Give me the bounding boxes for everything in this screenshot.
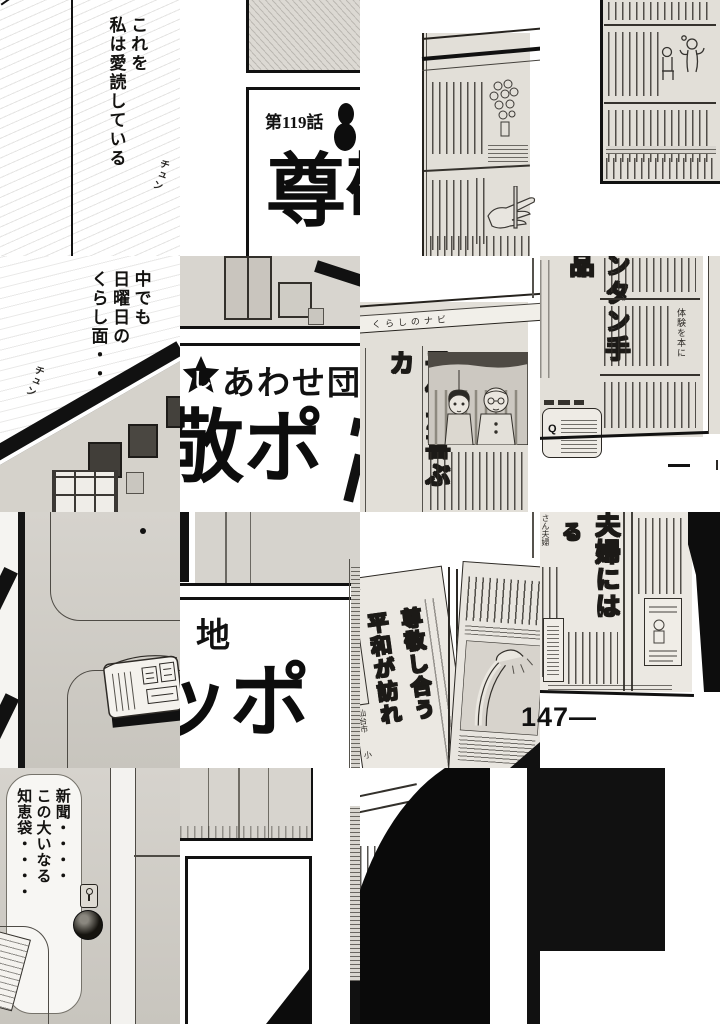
boxed-caption-marks [465,624,540,639]
title-fragment-2: 敬ポ [180,408,324,488]
panel-border [246,70,360,73]
wall-shading [195,512,360,583]
tile-newspaper-4: ンタン手品 体験を本に Q [540,256,720,512]
ad-header-mark [574,400,584,405]
newspaper-rule [604,102,716,104]
title-panel-border [246,87,249,256]
sfx-chirp-1: チュン [147,156,171,192]
newspaper-columns [604,382,696,428]
gutter-strip [490,768,527,1024]
tile-panel-corner [180,768,360,1024]
newspaper-rule [604,24,716,26]
building-window [166,396,180,428]
title-stroke-fragment [343,454,360,503]
page-edge-fragment [708,256,720,434]
headline-couple-3: る [562,516,582,545]
sign-star-char: し [192,364,212,393]
manga-page: これを 私は愛読している チュン 第119話 尊敬 [0,0,720,1024]
narration-text-1: これを 私は愛読している [104,16,149,240]
sfx-chirp-2: チュン [20,362,46,398]
newspaper-columns [430,452,528,510]
building-window [128,424,158,458]
tick-mark [716,460,718,470]
newspaper-border [600,0,603,184]
tile-door-2: 新聞・・・・ この大いなる 知恵袋・・・・ [0,768,180,1024]
tile-door-1 [0,512,180,768]
title-stroke-fragment [350,417,360,436]
tile-newspaper-2 [540,0,720,256]
newspaper-columns [432,82,470,154]
ad-header-mark [558,400,570,405]
title-fragment-1: 尊敬 [266,152,360,232]
peephole [140,528,146,534]
panel-border [180,838,313,841]
newspaper-columns [568,632,618,684]
silhouette-fragment [266,968,310,1024]
title-panel-border [180,343,360,346]
newspaper-columns [430,236,530,256]
fold-line [623,512,625,691]
newspaper-columns [540,260,556,378]
wall-vent-box [126,472,144,494]
panel-border [185,856,188,1024]
panel-border [71,0,73,256]
keyhole [86,888,93,895]
title-panel-border [180,597,360,600]
door-edge-line [18,512,25,768]
newspaper-right-page [448,561,540,768]
newspaper-rule [600,298,700,300]
wall-line [225,512,227,583]
sign-text-2: 地 [196,608,230,657]
newspaper-text-rows [488,142,528,162]
hinge-strip [350,806,360,981]
ad-header-mark [544,400,554,405]
newspaper-edge-line [360,783,417,797]
tile-title-3: 地 ッポ [180,512,360,768]
q-label: Q [548,423,557,435]
door-gap-strip [110,768,136,1024]
tile-title-2: し あわせ団 敬ポ [180,256,360,512]
tile-newspaper-3: くらしのナビ 子供が喜ぶカ [360,256,540,512]
title-fragment-3: ッポ [180,662,310,742]
newspaper-text-rows [548,682,672,690]
frame-line [134,855,180,857]
newspaper-columns [638,518,684,594]
black-margin [527,768,540,1024]
panel-corner-shading [248,0,360,71]
dash-mark [668,464,690,467]
tile-narration-2: 中でも 日曜日の くらし面・・。 チュン [0,256,180,512]
newspaper-border [422,33,424,256]
ad-box-figure [644,598,682,666]
panel-border [185,856,312,859]
tile-newspaper-5: 尊敬し合う 平和が訪れ 仙台市 小 [360,512,540,768]
newspaper-rule [600,374,700,376]
tiny-figure-illustration [645,599,681,665]
section-label: くらしのナビ [372,312,451,330]
page-edge-fragment [532,512,534,558]
newspaper-columns [608,32,660,96]
hand-illustration [484,186,540,236]
newspaper-border [426,33,427,256]
tile-black-block [540,768,720,1024]
door-knob [73,910,103,940]
building-window [224,256,272,320]
ad-box [543,618,564,682]
bird-mascot-icon [330,102,360,152]
panel-border [246,0,249,72]
newspaper-columns [466,576,540,625]
tile-newspaper-1 [360,0,540,256]
episode-label: 第119話 [265,108,324,133]
door-panel-line [50,512,180,621]
newspaper-columns [608,110,712,162]
column-rule [365,348,366,512]
newspaper-border [600,181,720,184]
fold-line [631,512,633,691]
panel-border [180,583,360,586]
black-block [540,768,665,951]
byline-couple: さん夫婦 [540,514,551,546]
photo-couple-illustration [428,352,528,445]
newspaper-columns [608,2,712,20]
qa-box: Q [542,408,602,458]
flower-bouquet-illustration [486,78,522,144]
sign-text-1: あわせ団 [222,356,360,404]
panel-border [180,326,360,329]
stick-figures-illustration [654,34,708,88]
frame-shadow-fragment [180,512,189,582]
wall-line [250,512,251,583]
building-window [278,282,312,318]
panel-border-fragment [1,0,13,6]
tile-title-1: 第119話 尊敬 [180,0,360,256]
building-window-frame [52,470,118,512]
newspaper-columns [474,82,485,154]
rolled-newspaper [100,645,180,724]
page-edge-fragment [532,258,534,298]
page-number: 147— [521,702,597,733]
byline-grade: 小 [362,750,374,759]
newspaper-columns [606,158,716,179]
hinge-line [349,559,350,768]
wall-texture [180,826,311,838]
newspaper-text-rows [606,146,716,154]
wall-vent-box [308,308,324,325]
note-experience: 体験を本に [675,308,688,358]
tile-silhouette [360,768,540,1024]
lock-plate [80,884,98,908]
hinge-strip [351,567,360,768]
keyhole-slot [88,895,90,901]
title-panel-border [246,87,360,90]
hinge-strip-dark [350,981,360,1024]
wall-shading [180,768,313,838]
newspaper-columns [604,258,696,292]
tile-narration-1: これを 私は愛読している チュン [0,0,180,256]
newspaper-columns [604,306,670,366]
ad-text-rows [547,623,559,675]
